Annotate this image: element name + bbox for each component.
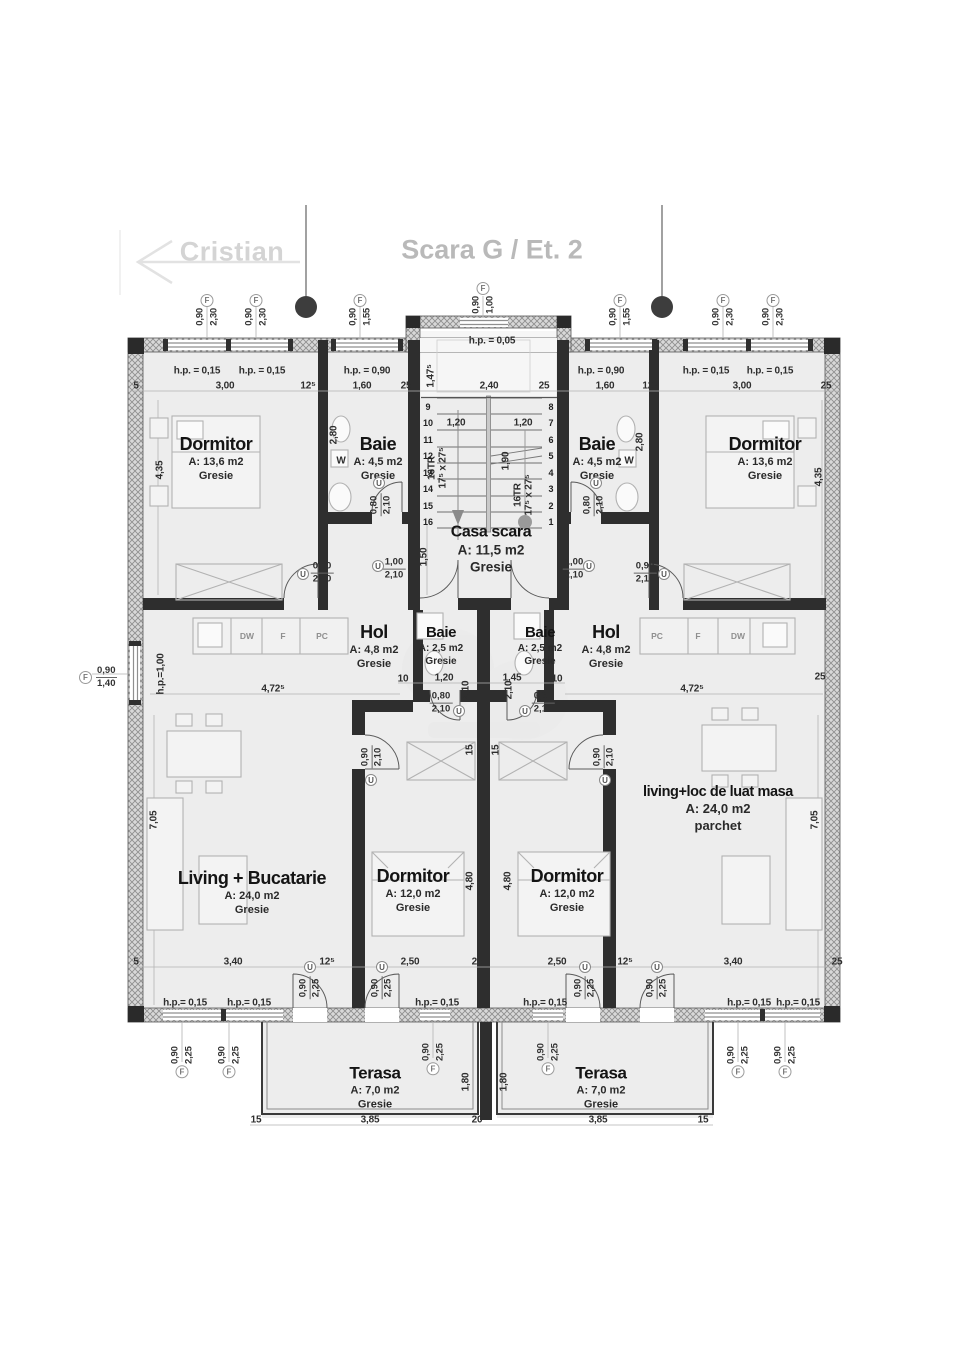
back-nav-label[interactable]: Cristian xyxy=(180,237,285,268)
window-dimensions: 0,901,40 xyxy=(96,665,117,690)
page-title: Scara G / Et. 2 xyxy=(401,235,583,266)
floor-plan-drawing xyxy=(0,0,967,1369)
window-marker-left: F 0,901,40 xyxy=(79,665,117,690)
floor-plan-page: Cristian Scara G / Et. 2 F 0,901,40 Dorm… xyxy=(0,0,967,1369)
f-axis-icon: F xyxy=(79,671,92,684)
